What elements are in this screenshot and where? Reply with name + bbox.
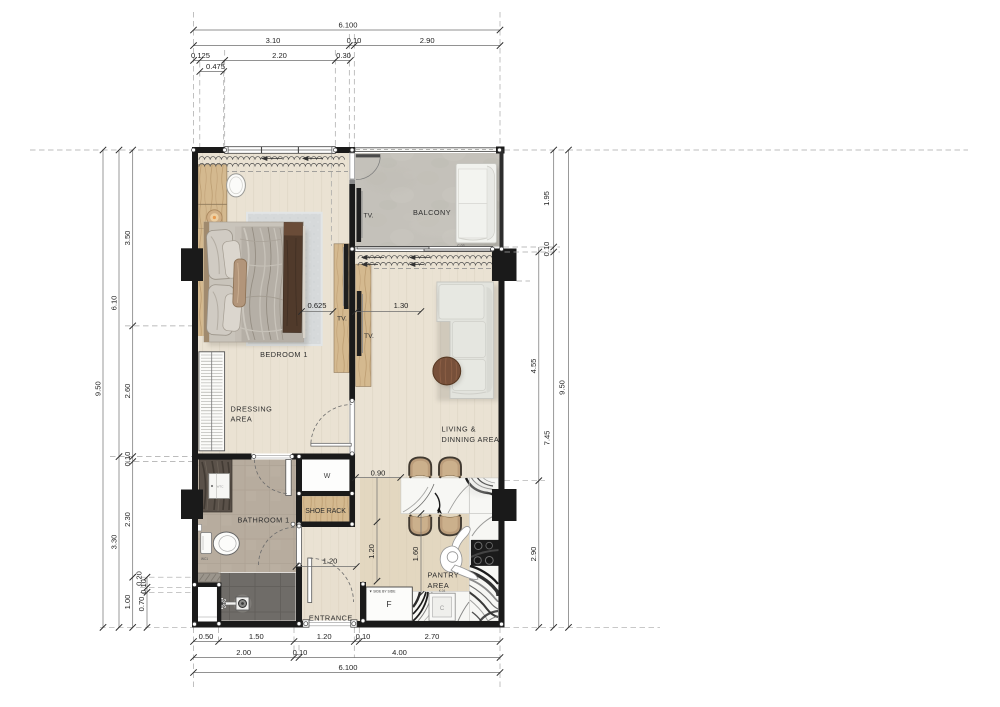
svg-text:AREA: AREA: [231, 415, 253, 424]
svg-text:1.95: 1.95: [542, 191, 551, 206]
svg-text:C: C: [440, 606, 445, 612]
svg-text:1.50: 1.50: [249, 632, 264, 641]
svg-text:3.50: 3.50: [123, 231, 132, 246]
svg-text:9.50: 9.50: [558, 380, 567, 395]
svg-text:2.90: 2.90: [420, 36, 435, 45]
svg-text:2.70: 2.70: [425, 632, 440, 641]
svg-text:1.00: 1.00: [123, 595, 132, 610]
svg-text:2.20: 2.20: [272, 51, 287, 60]
svg-text:LIVING &: LIVING &: [442, 425, 476, 434]
svg-text:6.100: 6.100: [338, 663, 357, 672]
svg-text:0.125: 0.125: [191, 51, 210, 60]
svg-text:3.10: 3.10: [266, 36, 281, 45]
svg-text:2.60: 2.60: [123, 384, 132, 399]
svg-text:AREA: AREA: [428, 581, 450, 590]
svg-text:1.20: 1.20: [367, 544, 376, 559]
svg-text:0.625: 0.625: [307, 301, 326, 310]
svg-text:2.30: 2.30: [123, 512, 132, 527]
svg-text:1.60: 1.60: [411, 547, 420, 562]
svg-text:DINNING AREA: DINNING AREA: [442, 435, 500, 444]
svg-text:DRESSING: DRESSING: [231, 405, 273, 414]
svg-text:▼ SIDE BY SIDE: ▼ SIDE BY SIDE: [369, 590, 396, 594]
svg-text:TV.: TV.: [337, 316, 347, 323]
svg-text:0.30: 0.30: [336, 51, 351, 60]
svg-text:0.10: 0.10: [347, 36, 362, 45]
svg-text:F: F: [386, 599, 391, 609]
svg-text:BATHROOM 1: BATHROOM 1: [237, 516, 289, 525]
svg-text:4.00: 4.00: [392, 648, 407, 657]
svg-text:PANTRY: PANTRY: [428, 571, 460, 580]
svg-text:0.50: 0.50: [199, 632, 214, 641]
svg-text:1.20: 1.20: [323, 557, 338, 566]
svg-text:4.55: 4.55: [529, 359, 538, 374]
svg-text:0.475: 0.475: [206, 62, 225, 71]
svg-text:3.30: 3.30: [109, 535, 118, 550]
svg-text:TV.: TV.: [364, 213, 374, 220]
svg-text:0.10: 0.10: [293, 648, 308, 657]
svg-text:1.20: 1.20: [317, 632, 332, 641]
svg-text:6.100: 6.100: [338, 21, 357, 30]
svg-text:1.30: 1.30: [394, 301, 409, 310]
svg-text:9.50: 9.50: [93, 381, 102, 396]
svg-text:SHOE RACK: SHOE RACK: [305, 508, 346, 515]
svg-text:0.10: 0.10: [356, 632, 371, 641]
svg-text:0.90: 0.90: [371, 469, 386, 478]
svg-text:W: W: [324, 473, 331, 480]
svg-text:0.10: 0.10: [139, 579, 148, 594]
svg-text:6.10: 6.10: [109, 296, 118, 311]
svg-text:2.90: 2.90: [529, 547, 538, 562]
svg-text:BEDROOM 1: BEDROOM 1: [260, 350, 308, 359]
svg-text:WTC: WTC: [217, 485, 225, 489]
svg-text:ENTRANCE: ENTRANCE: [309, 613, 353, 622]
svg-text:0.10: 0.10: [542, 242, 551, 257]
svg-text:0.70: 0.70: [137, 597, 146, 612]
svg-text:TV.: TV.: [364, 333, 374, 340]
svg-text:2.00: 2.00: [236, 648, 251, 657]
svg-text:7.45: 7.45: [543, 431, 552, 446]
svg-text:0.10: 0.10: [123, 452, 132, 467]
svg-text:WC1: WC1: [201, 557, 208, 561]
svg-text:BALCONY: BALCONY: [413, 208, 451, 217]
